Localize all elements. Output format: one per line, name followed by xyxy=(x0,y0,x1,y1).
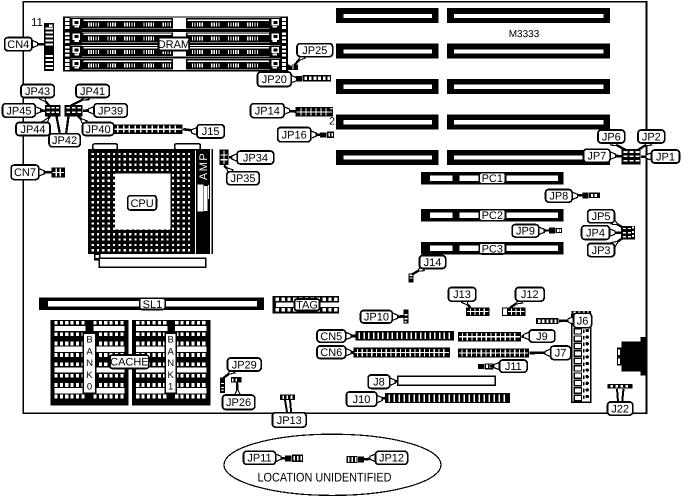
svg-text:JP42: JP42 xyxy=(52,135,77,147)
svg-text:JP34: JP34 xyxy=(243,152,268,164)
svg-text:DRAM: DRAM xyxy=(158,39,190,51)
svg-text:J12: J12 xyxy=(521,289,539,301)
svg-text:P: P xyxy=(198,153,210,160)
svg-text:JP8: JP8 xyxy=(549,191,568,203)
svg-text:J9: J9 xyxy=(536,331,548,343)
svg-text:B: B xyxy=(86,335,92,346)
svg-text:JP45: JP45 xyxy=(6,105,31,117)
svg-text:J8: J8 xyxy=(373,377,385,389)
svg-text:J13: J13 xyxy=(453,289,471,301)
svg-text:CACHE: CACHE xyxy=(110,357,149,369)
svg-text:CN7: CN7 xyxy=(14,167,36,179)
svg-text:JP10: JP10 xyxy=(364,312,389,324)
svg-text:A: A xyxy=(198,172,210,180)
svg-text:J7: J7 xyxy=(555,348,567,360)
svg-text:M: M xyxy=(198,162,210,171)
svg-text:11: 11 xyxy=(31,17,43,29)
svg-text:K: K xyxy=(86,370,93,381)
svg-text:JP1: JP1 xyxy=(656,151,675,163)
svg-text:JP16: JP16 xyxy=(282,130,307,142)
svg-text:N: N xyxy=(167,358,174,369)
svg-text:J22: J22 xyxy=(611,403,629,415)
svg-text:J10: J10 xyxy=(353,394,371,406)
svg-text:JP11: JP11 xyxy=(247,453,271,465)
svg-text:CPU: CPU xyxy=(130,198,153,210)
svg-text:JP25: JP25 xyxy=(302,45,327,57)
svg-text:JP2: JP2 xyxy=(642,131,661,143)
svg-text:TAG: TAG xyxy=(296,300,318,312)
svg-text:CN4: CN4 xyxy=(7,39,29,51)
svg-text:JP3: JP3 xyxy=(592,245,611,257)
svg-text:B: B xyxy=(168,335,174,346)
svg-text:2: 2 xyxy=(329,115,335,127)
svg-text:K: K xyxy=(168,370,175,381)
svg-text:JP4: JP4 xyxy=(586,228,605,240)
svg-text:JP29: JP29 xyxy=(232,359,257,371)
svg-text:JP43: JP43 xyxy=(25,86,50,98)
svg-text:JP9: JP9 xyxy=(516,226,535,238)
svg-text:PC3: PC3 xyxy=(482,243,503,255)
svg-text:J6: J6 xyxy=(577,315,589,327)
svg-text:1: 1 xyxy=(168,382,173,393)
svg-text:JP20: JP20 xyxy=(262,74,287,86)
svg-text:JP39: JP39 xyxy=(98,105,123,117)
svg-text:M3333: M3333 xyxy=(509,29,540,40)
svg-text:JP13: JP13 xyxy=(277,415,302,427)
svg-text:JP5: JP5 xyxy=(592,211,611,223)
svg-text:JP44: JP44 xyxy=(20,124,45,136)
svg-text:J15: J15 xyxy=(202,126,220,138)
svg-text:LOCATION UNIDENTIFIED: LOCATION UNIDENTIFIED xyxy=(258,471,392,485)
svg-text:J11: J11 xyxy=(505,361,522,373)
svg-text:JP7: JP7 xyxy=(587,151,606,163)
svg-text:JP12: JP12 xyxy=(379,453,404,465)
svg-text:0: 0 xyxy=(87,382,92,393)
svg-text:JP35: JP35 xyxy=(230,173,255,185)
svg-text:CN6: CN6 xyxy=(320,347,342,359)
svg-text:JP26: JP26 xyxy=(226,397,251,409)
svg-text:N: N xyxy=(86,358,93,369)
svg-text:JP40: JP40 xyxy=(86,124,111,136)
svg-text:J14: J14 xyxy=(424,257,442,269)
svg-text:JP6: JP6 xyxy=(602,131,621,143)
svg-text:PC1: PC1 xyxy=(482,173,503,185)
svg-text:PC2: PC2 xyxy=(482,210,503,222)
svg-text:SL1: SL1 xyxy=(143,299,163,311)
svg-text:CN5: CN5 xyxy=(320,331,342,343)
svg-text:JP14: JP14 xyxy=(255,106,280,118)
svg-text:A: A xyxy=(86,346,93,357)
svg-text:A: A xyxy=(168,346,175,357)
svg-text:JP41: JP41 xyxy=(80,86,105,98)
